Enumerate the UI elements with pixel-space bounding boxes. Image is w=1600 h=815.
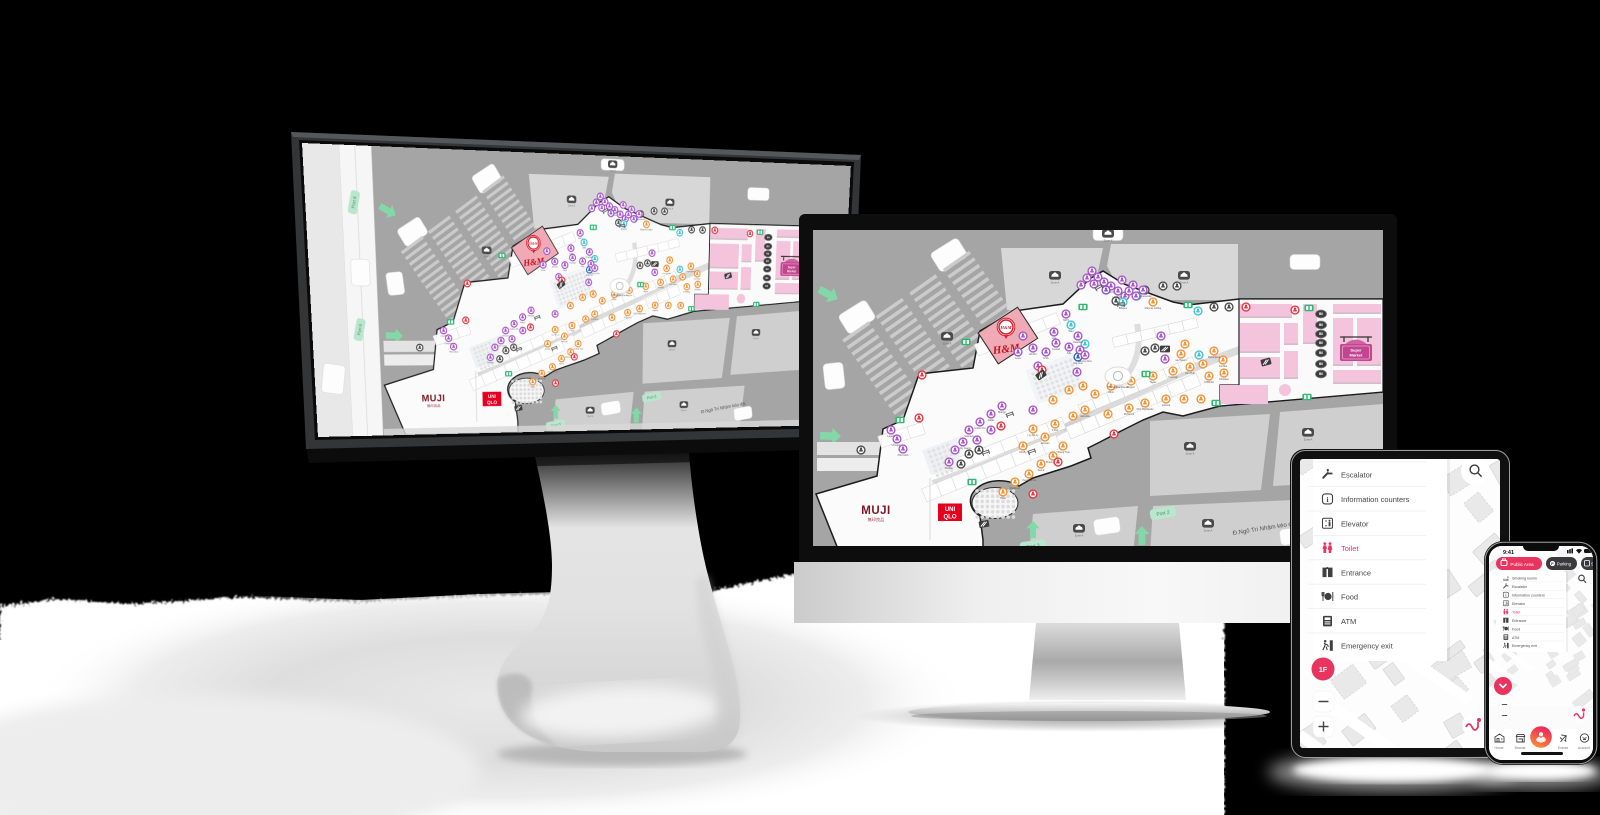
- svg-text:Food: Food: [1512, 627, 1520, 631]
- svg-text:ATM: ATM: [1341, 617, 1356, 626]
- svg-text:Entrance: Entrance: [1341, 568, 1371, 577]
- svg-text:Toilet: Toilet: [1341, 544, 1359, 553]
- svg-text:Brands: Brands: [1515, 746, 1526, 750]
- svg-text:i: i: [1326, 495, 1328, 504]
- svg-text:Home: Home: [1494, 746, 1503, 750]
- svg-text:Toilet: Toilet: [1512, 610, 1520, 614]
- svg-text:Account: Account: [1578, 746, 1590, 750]
- svg-text:Elevator: Elevator: [1512, 602, 1526, 606]
- svg-text:Elevator: Elevator: [1341, 520, 1369, 529]
- svg-text:Emergency exit: Emergency exit: [1341, 642, 1394, 651]
- svg-text:Information counters: Information counters: [1341, 495, 1410, 504]
- svg-text:Parking: Parking: [1557, 562, 1572, 567]
- svg-text:9:41: 9:41: [1503, 550, 1514, 556]
- svg-text:P: P: [1551, 561, 1554, 566]
- svg-text:1F: 1F: [1319, 667, 1328, 674]
- svg-text:Information counters: Information counters: [1512, 594, 1545, 598]
- svg-text:Entrance: Entrance: [1512, 619, 1526, 623]
- svg-text:Food: Food: [1341, 593, 1358, 602]
- svg-text:ATM: ATM: [1512, 636, 1519, 640]
- svg-text:Events: Events: [1558, 746, 1569, 750]
- svg-text:Escalator: Escalator: [1512, 585, 1528, 589]
- svg-text:Emergency exit: Emergency exit: [1512, 644, 1537, 648]
- svg-text:Smoking rooms: Smoking rooms: [1512, 577, 1537, 581]
- svg-text:Public Area: Public Area: [1510, 562, 1534, 567]
- svg-text:Escalator: Escalator: [1341, 471, 1373, 480]
